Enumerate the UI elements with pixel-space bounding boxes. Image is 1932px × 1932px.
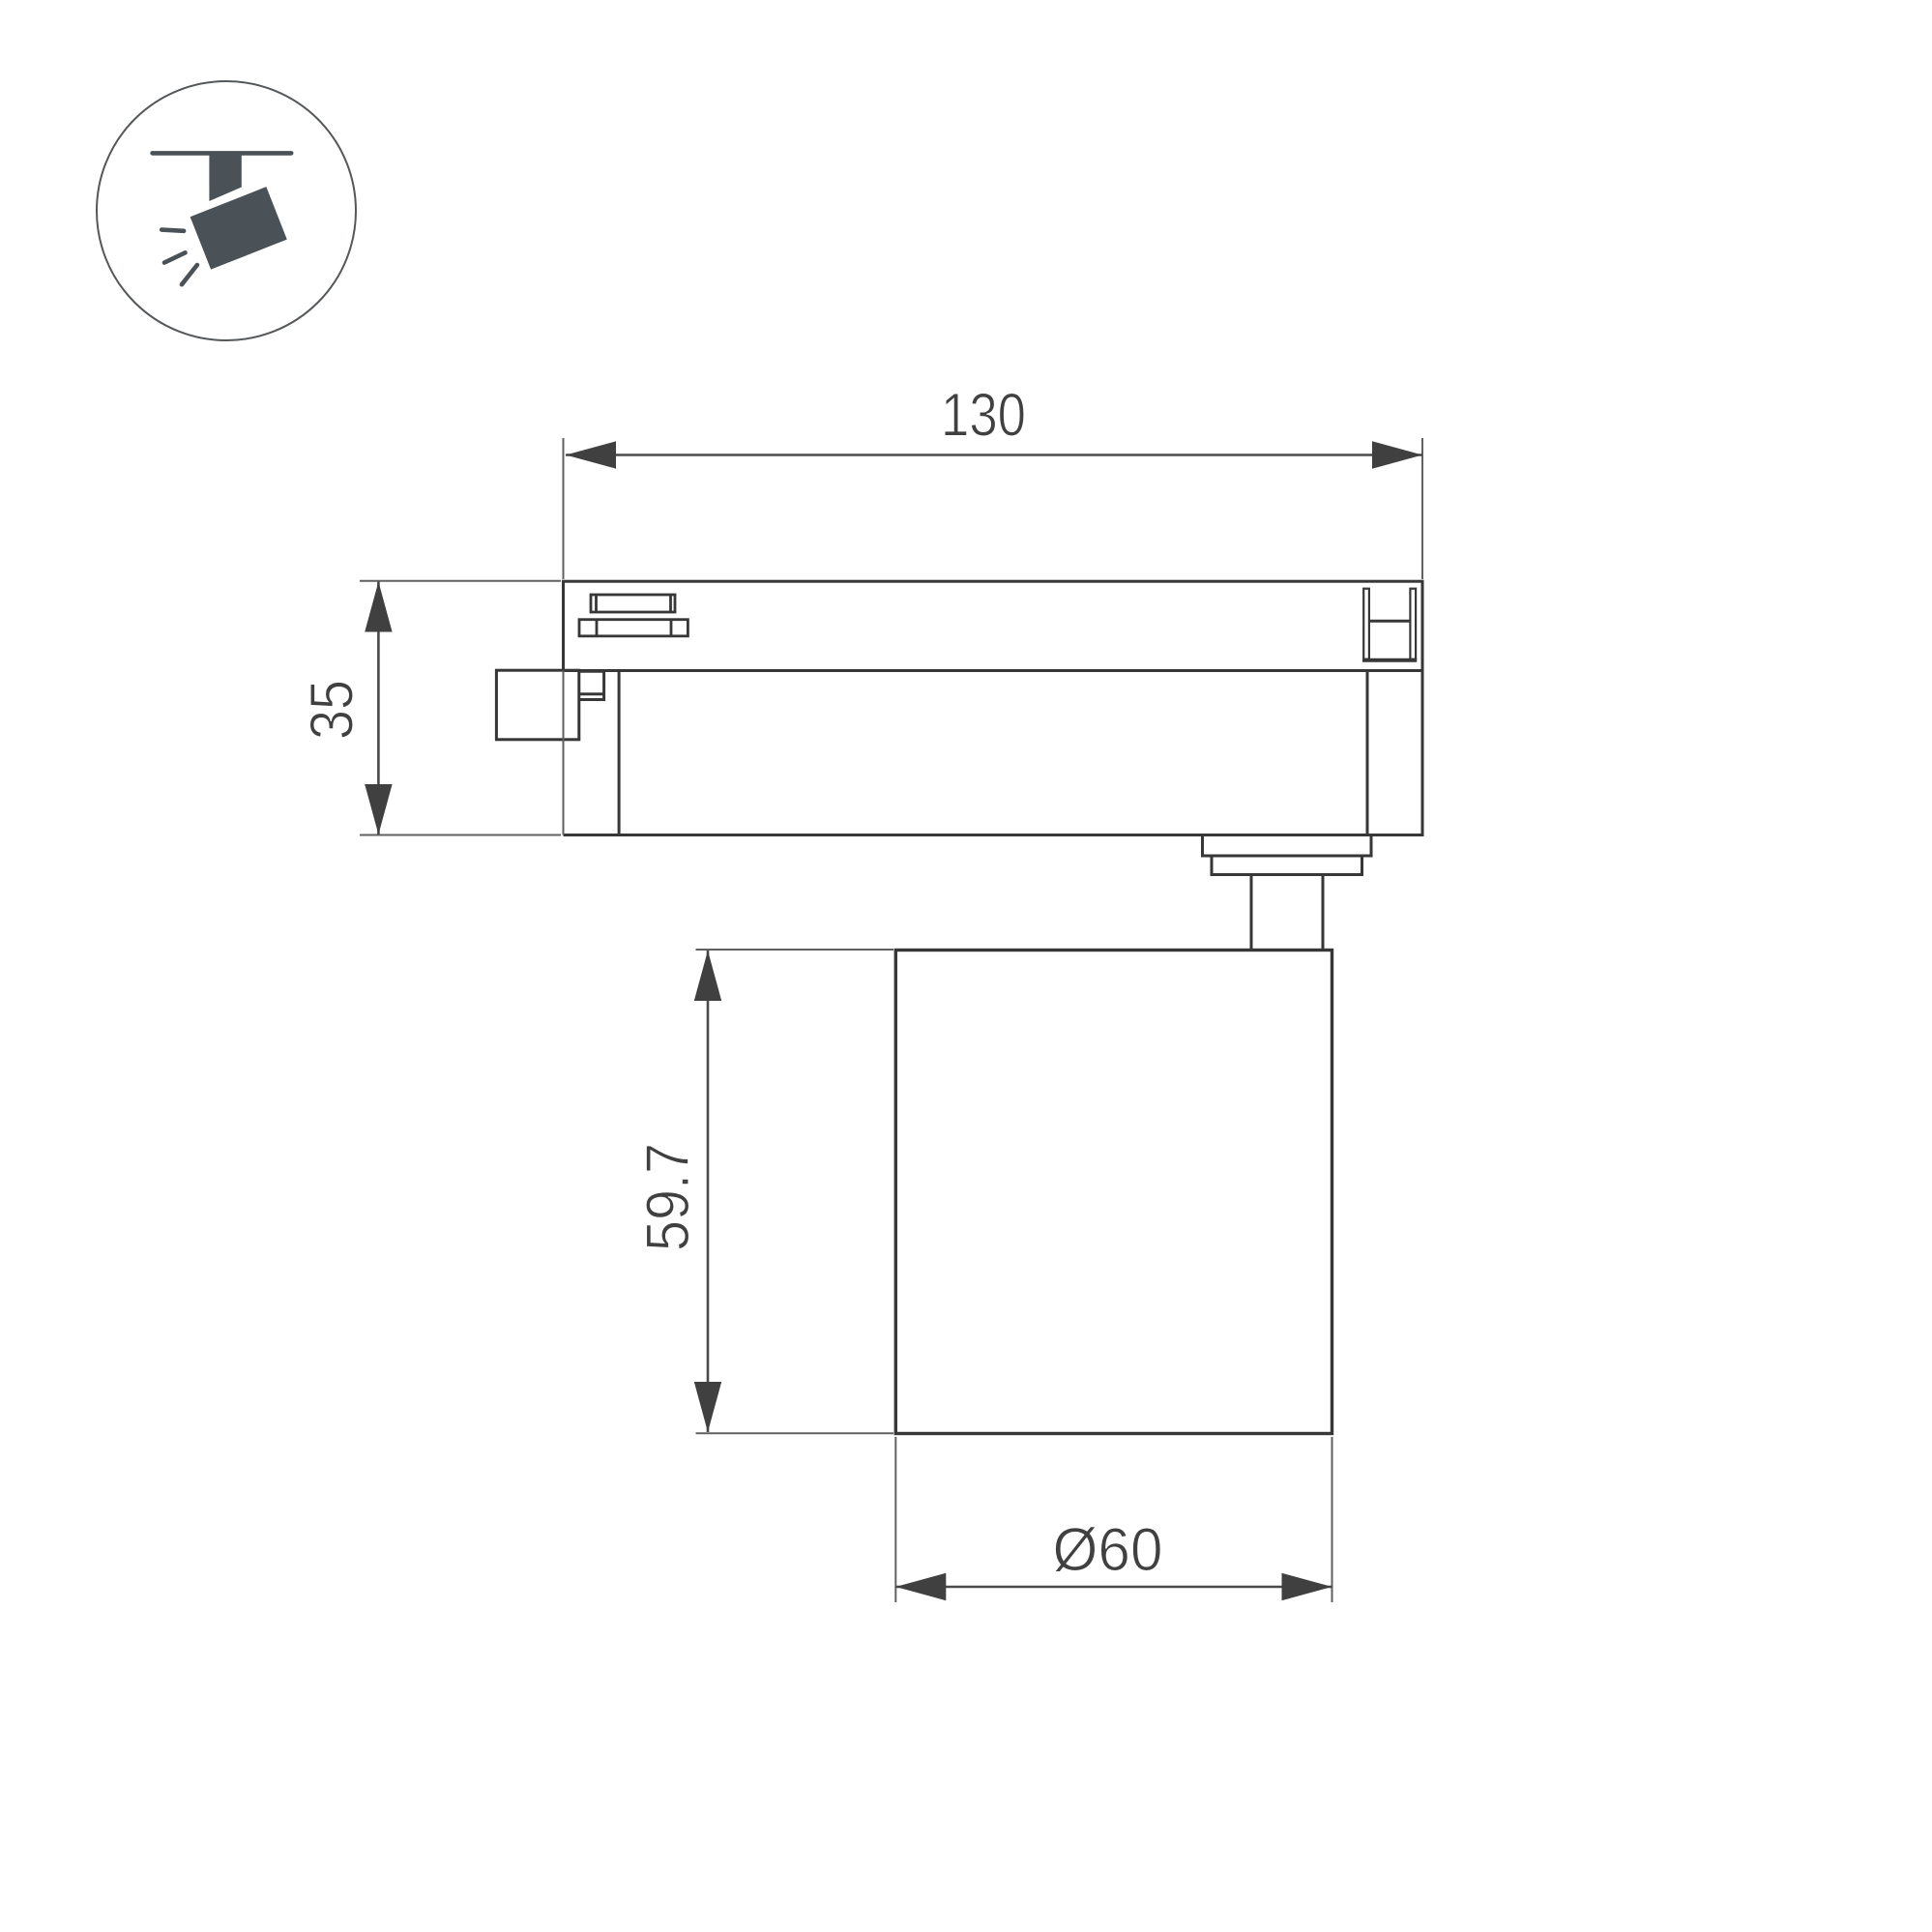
svg-text:Ø60: Ø60	[1053, 1516, 1163, 1584]
svg-text:130: 130	[941, 382, 1026, 450]
svg-text:59.7: 59.7	[634, 1143, 702, 1251]
svg-text:35: 35	[298, 680, 366, 740]
